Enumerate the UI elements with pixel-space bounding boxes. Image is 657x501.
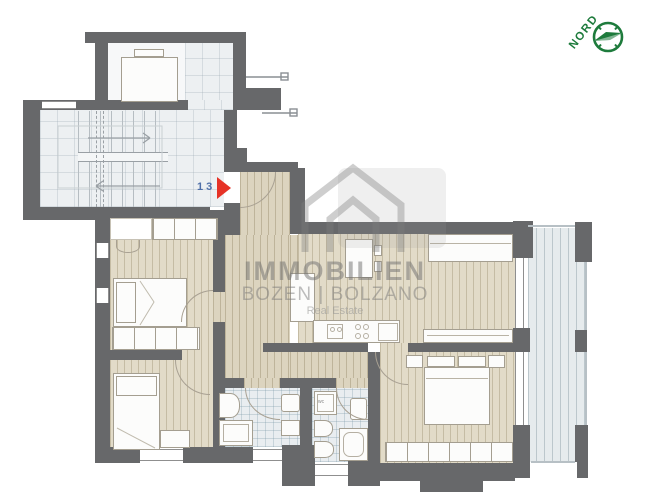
wardrobe: [385, 442, 513, 462]
wall: [290, 168, 305, 234]
kitchen-appliance: [378, 323, 398, 341]
wardrobe: [152, 218, 218, 240]
stair-cut-line: [103, 111, 104, 207]
wall: [368, 352, 380, 465]
nightstand: [488, 355, 505, 368]
pillow: [427, 356, 455, 367]
door-swing-half: [116, 240, 140, 253]
bedroom1-door-threshold: [213, 292, 225, 322]
bathtub-inner: [343, 432, 364, 457]
wall: [224, 110, 237, 148]
stair-center-rail: [78, 152, 168, 162]
balcony-edge: [585, 352, 587, 425]
wall: [298, 222, 533, 234]
wall: [23, 100, 40, 220]
stair-treads-upper: [78, 111, 166, 152]
hob-burner: [355, 324, 361, 330]
toilet: [314, 420, 333, 437]
bath1-door-threshold: [244, 378, 280, 388]
elevator-counterweight: [134, 49, 164, 57]
master-door-threshold: [380, 343, 408, 352]
balcony-edge: [585, 262, 587, 330]
elevator-car: [121, 57, 178, 102]
hallway-floor-south: [290, 352, 368, 378]
window: [140, 449, 183, 461]
stair-cut-line: [96, 111, 97, 207]
sink-bowl: [330, 327, 335, 332]
bath2-door-threshold: [336, 378, 368, 388]
sofa-back-line: [430, 243, 511, 244]
bidet: [314, 441, 334, 458]
wall: [95, 43, 108, 103]
wall: [378, 463, 515, 481]
sink-bowl: [337, 327, 342, 332]
compass-north-label: NORD: [566, 11, 603, 53]
wall: [420, 481, 483, 492]
compass-icon: [594, 23, 622, 51]
balcony-edge: [528, 225, 575, 227]
pillar: [513, 425, 530, 478]
washbasin: [281, 394, 300, 412]
wall: [233, 88, 281, 110]
window: [315, 464, 348, 476]
wall: [233, 43, 246, 88]
balcony-edge: [531, 461, 575, 463]
wall: [85, 32, 246, 43]
sideboard-line: [427, 335, 509, 336]
wall: [224, 162, 298, 172]
balcony-pillar: [577, 462, 588, 478]
hob-burner: [363, 333, 369, 339]
pillow: [458, 356, 486, 367]
wall: [300, 385, 312, 463]
lobby-passage-floor: [187, 100, 224, 110]
sideboard: [423, 329, 513, 343]
balcony-pillar: [575, 330, 587, 352]
chair: [374, 245, 382, 256]
stair-treads-lower: [78, 162, 166, 207]
shower-tray: [223, 424, 249, 442]
double-bed: [424, 367, 490, 425]
bed-fold-line: [426, 378, 488, 379]
balcony-pillar: [575, 222, 592, 262]
pillar: [513, 328, 530, 352]
window: [96, 243, 109, 258]
pillow: [116, 376, 157, 396]
balcony-pillar: [575, 425, 588, 462]
balcony-door-glazing: [515, 352, 524, 425]
wall: [213, 378, 244, 388]
wc-label: wc: [318, 399, 332, 405]
wall: [110, 350, 182, 360]
entry-threshold: [224, 172, 240, 203]
desk: [160, 430, 190, 448]
floor-plan: 13 IMMOBILIEN BOZEN | BOLZANO Real Estat…: [0, 0, 657, 501]
wall: [263, 343, 368, 352]
pillow: [116, 282, 136, 323]
wall: [183, 447, 253, 463]
hob-burner: [355, 333, 361, 339]
window: [253, 449, 282, 461]
nightstand: [406, 355, 423, 368]
wardrobe: [112, 327, 200, 350]
watermark-tagline: Real Estate: [240, 305, 430, 317]
niche: [110, 218, 152, 240]
window: [96, 288, 109, 303]
window: [42, 101, 76, 109]
hob-burner: [363, 324, 369, 330]
unit-number-label: 13: [197, 181, 217, 193]
watermark-location: BOZEN | BOLZANO: [240, 284, 430, 306]
balcony-door-glazing: [515, 258, 524, 328]
bath-cabinet: [281, 420, 300, 436]
watermark-brand: IMMOBILIEN: [240, 256, 430, 287]
wall: [408, 343, 530, 352]
toilet: [219, 393, 240, 418]
sofa: [428, 234, 513, 262]
